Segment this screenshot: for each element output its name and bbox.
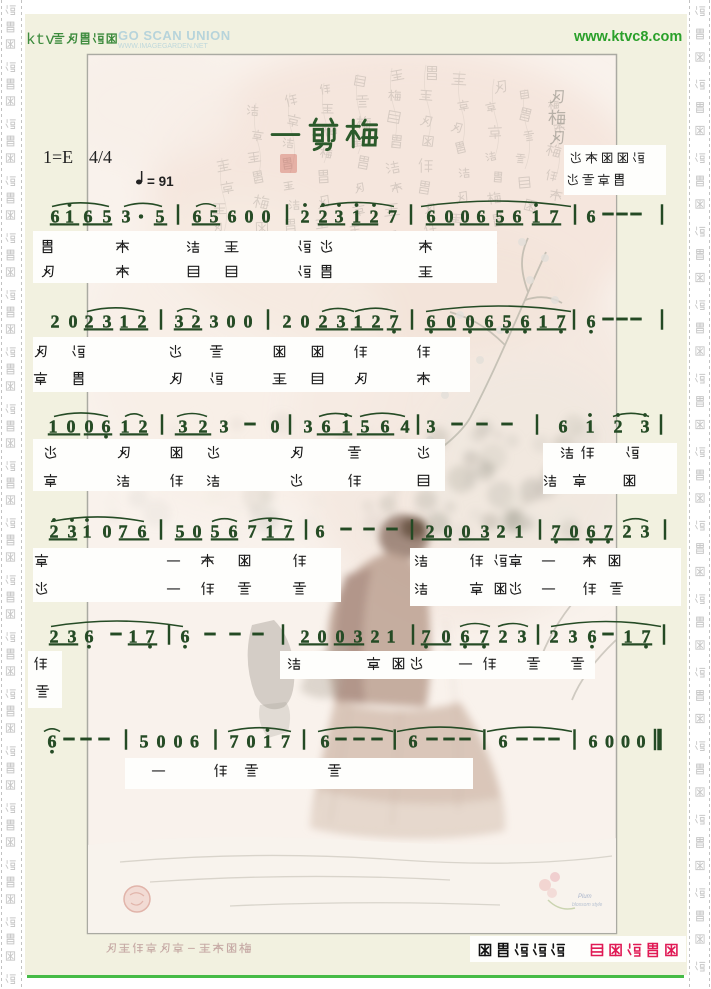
svg-text:3: 3 — [641, 522, 650, 542]
svg-text:3: 3 — [122, 207, 131, 227]
svg-text:ktv: ktv — [26, 31, 55, 49]
svg-text:1=E: 1=E — [43, 147, 73, 167]
svg-text:0: 0 — [69, 312, 78, 332]
svg-text:3: 3 — [210, 312, 219, 332]
svg-text:= 91: = 91 — [147, 174, 174, 189]
svg-text:2: 2 — [301, 207, 310, 227]
svg-text:0: 0 — [301, 312, 310, 332]
svg-text:2: 2 — [614, 417, 623, 437]
svg-text:6: 6 — [181, 627, 190, 647]
svg-text:3: 3 — [220, 417, 229, 437]
svg-text:1: 1 — [387, 627, 396, 647]
svg-text:6: 6 — [559, 417, 568, 437]
svg-text:2: 2 — [283, 312, 292, 332]
svg-text:6: 6 — [316, 522, 325, 542]
svg-text:6: 6 — [321, 732, 330, 752]
svg-text:2: 2 — [51, 312, 60, 332]
svg-text:5: 5 — [140, 732, 149, 752]
svg-text:6: 6 — [588, 627, 597, 647]
svg-text:2: 2 — [497, 522, 506, 542]
svg-text:blossom style: blossom style — [572, 902, 603, 908]
svg-text:7: 7 — [281, 732, 290, 752]
svg-text:1: 1 — [515, 522, 524, 542]
svg-text:0: 0 — [621, 732, 630, 752]
svg-text:6: 6 — [409, 732, 418, 752]
svg-text:0: 0 — [174, 732, 183, 752]
svg-text:0: 0 — [271, 417, 280, 437]
svg-text:0: 0 — [227, 312, 236, 332]
svg-text:2: 2 — [499, 627, 508, 647]
svg-text:6: 6 — [589, 732, 598, 752]
svg-text:6: 6 — [587, 207, 596, 227]
svg-text:7: 7 — [388, 207, 397, 227]
svg-text:2: 2 — [371, 627, 380, 647]
svg-text:4: 4 — [401, 417, 410, 437]
svg-text:6: 6 — [190, 732, 199, 752]
svg-text:0: 0 — [637, 732, 646, 752]
svg-text:4/4: 4/4 — [89, 147, 112, 167]
svg-text:0: 0 — [245, 207, 254, 227]
svg-text:3: 3 — [304, 417, 313, 437]
svg-text:3: 3 — [427, 417, 436, 437]
svg-text:3: 3 — [569, 627, 578, 647]
svg-text:0: 0 — [157, 732, 166, 752]
svg-text:3: 3 — [641, 417, 650, 437]
svg-text:6: 6 — [228, 207, 237, 227]
svg-text:WWW.IMAGEGARDEN.NET: WWW.IMAGEGARDEN.NET — [118, 43, 209, 50]
svg-text:0: 0 — [103, 522, 112, 542]
svg-text:2: 2 — [623, 522, 632, 542]
svg-text:0: 0 — [262, 207, 271, 227]
svg-text:1: 1 — [83, 522, 92, 542]
svg-text:6: 6 — [587, 312, 596, 332]
svg-text:www.ktvc8.com: www.ktvc8.com — [573, 29, 682, 45]
svg-text:6: 6 — [499, 732, 508, 752]
svg-text:2: 2 — [550, 627, 559, 647]
svg-text:1: 1 — [586, 417, 595, 437]
svg-text:0: 0 — [244, 312, 253, 332]
svg-text:6: 6 — [48, 732, 57, 752]
svg-text:0: 0 — [605, 732, 614, 752]
svg-text:Plum: Plum — [578, 894, 592, 900]
svg-text:7: 7 — [230, 732, 239, 752]
svg-text:GO SCAN UNION: GO SCAN UNION — [118, 28, 231, 43]
svg-text:3: 3 — [518, 627, 527, 647]
svg-text:6: 6 — [85, 627, 94, 647]
svg-text:0: 0 — [247, 732, 256, 752]
svg-text:1: 1 — [263, 732, 272, 752]
svg-text:7: 7 — [248, 522, 257, 542]
